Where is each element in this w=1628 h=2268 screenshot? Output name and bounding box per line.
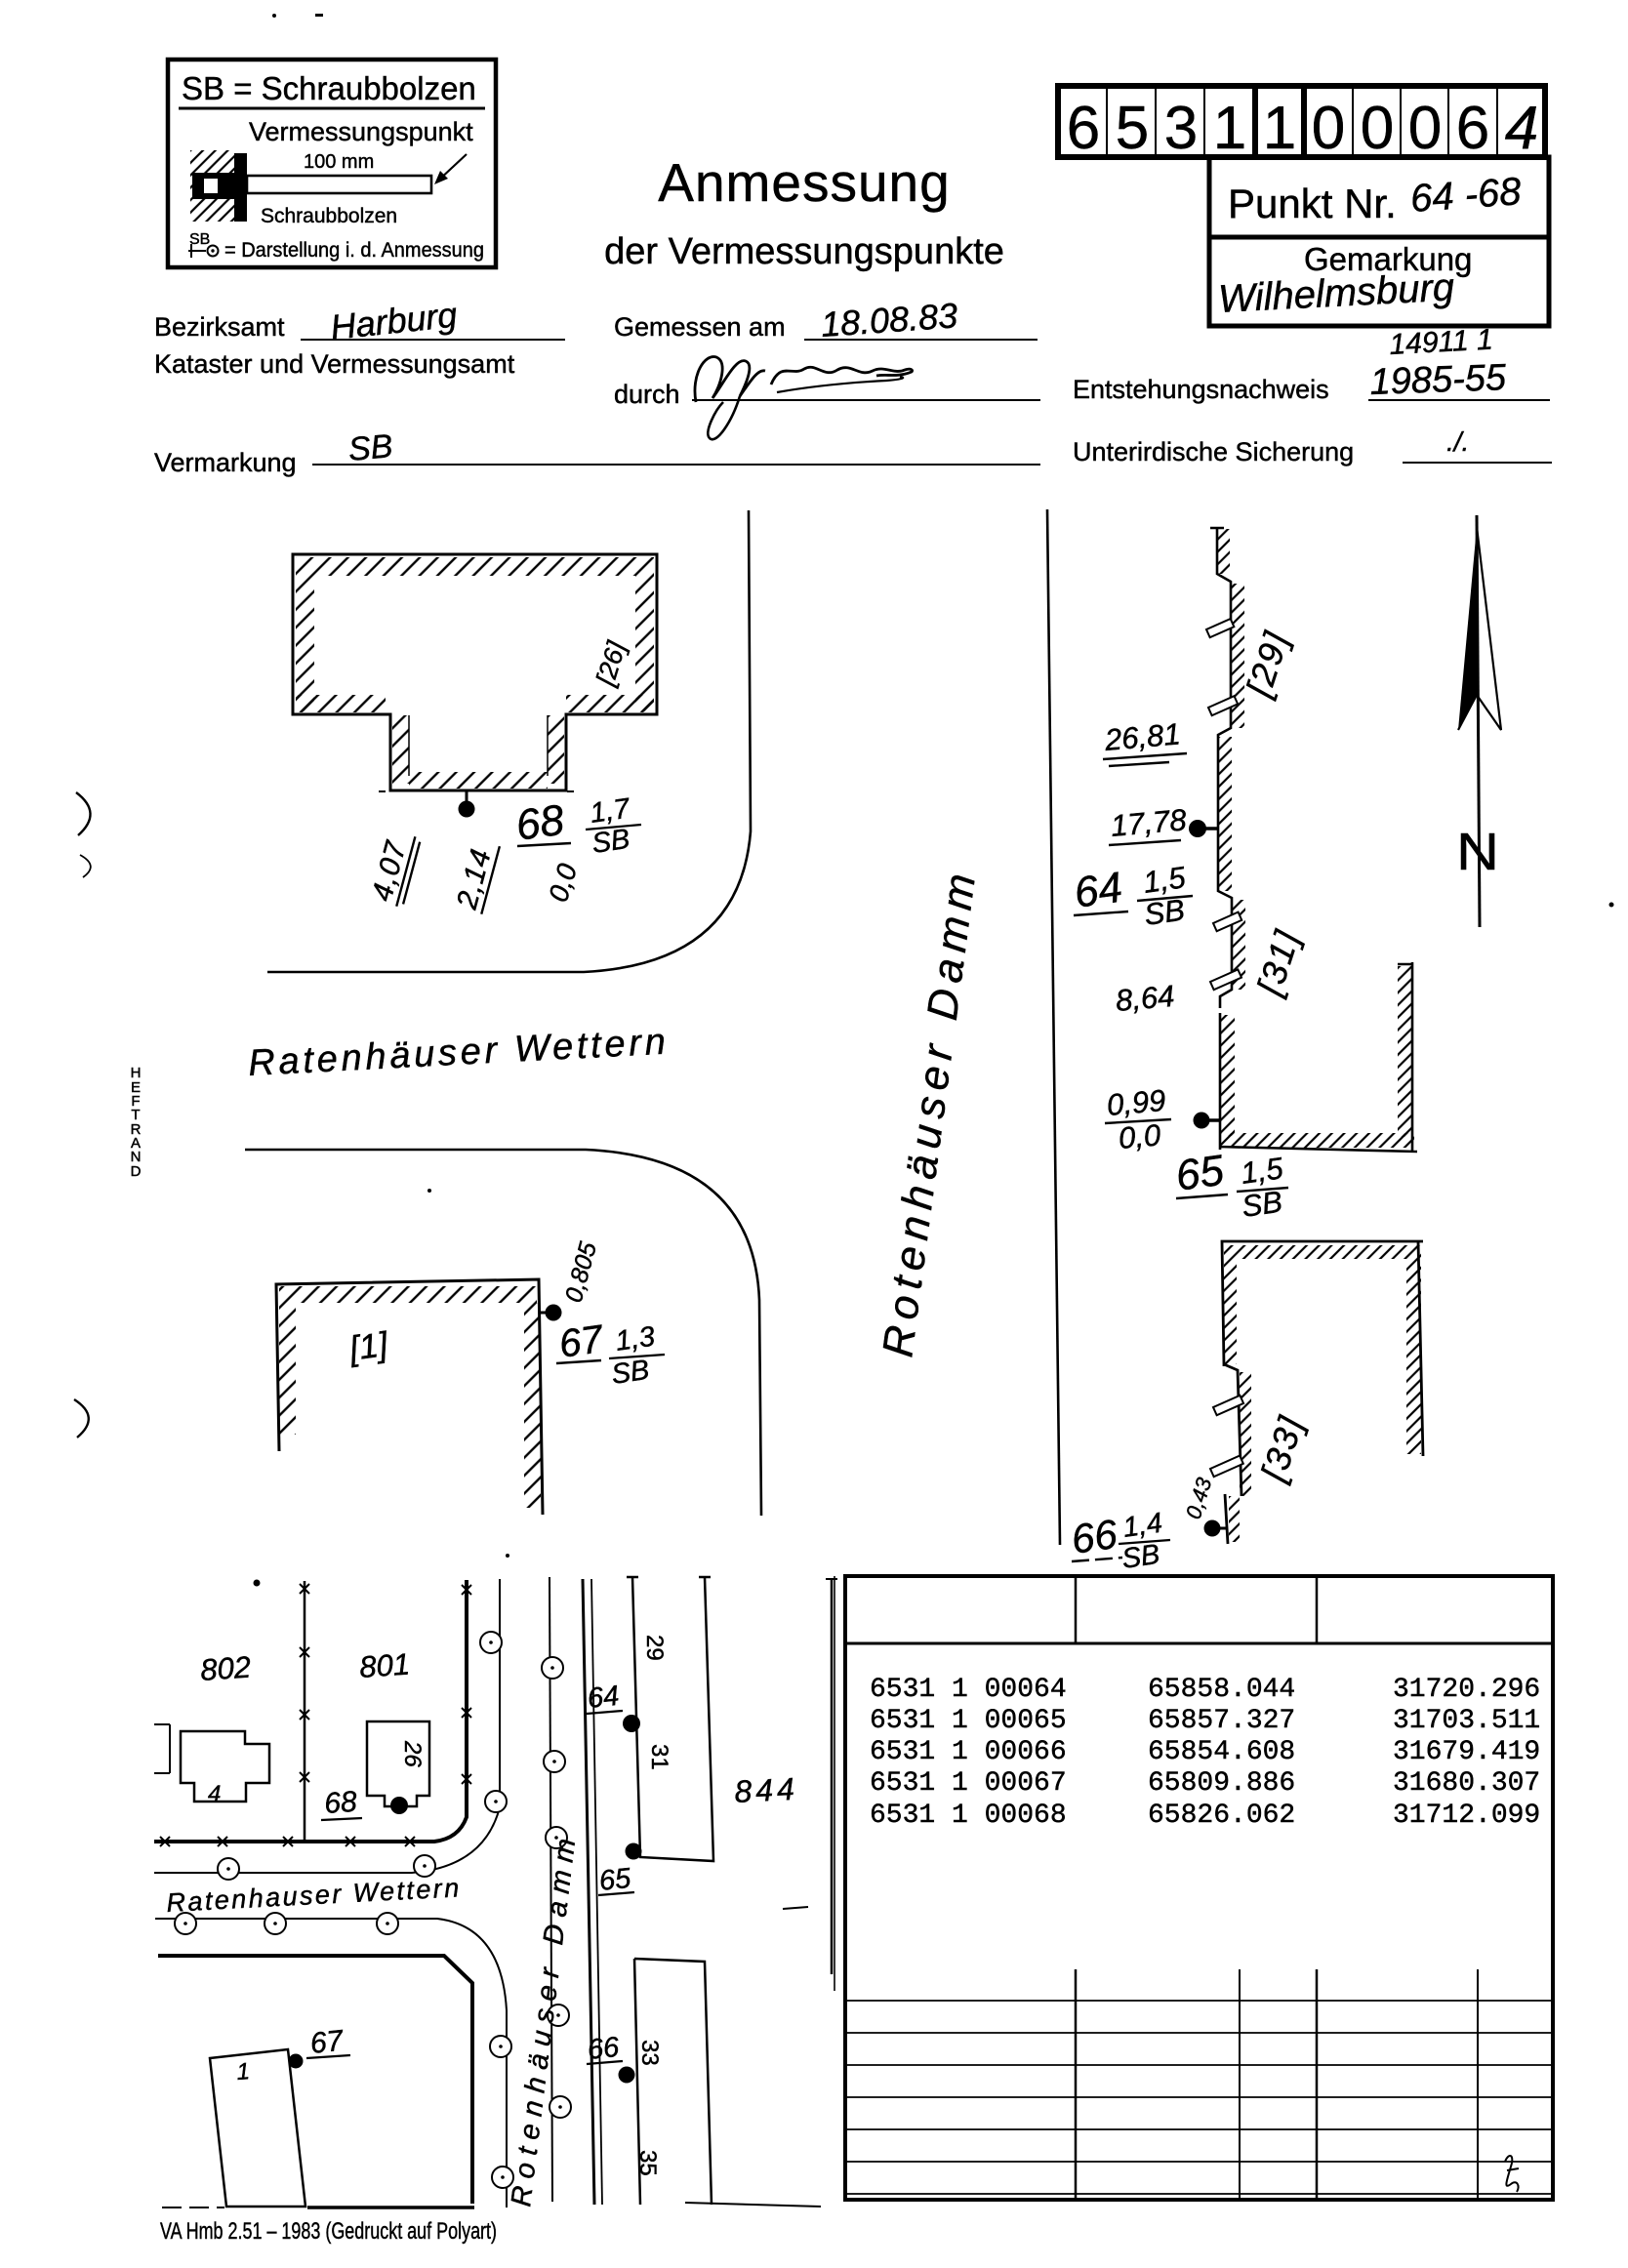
svg-text:26: 26 [399,1740,426,1767]
svg-text:31712.099: 31712.099 [1393,1801,1540,1831]
svg-text:1985-55: 1985-55 [1369,357,1508,403]
svg-text:Unterirdische Sicherung: Unterirdische Sicherung [1073,437,1354,466]
svg-text:67: 67 [556,1317,607,1366]
svg-text:0,805: 0,805 [560,1239,602,1306]
svg-text:6: 6 [1456,95,1489,162]
svg-text:SB: SB [610,1355,652,1391]
svg-text:5: 5 [1116,95,1149,162]
svg-text:1: 1 [1213,95,1246,162]
svg-text:1,4: 1,4 [1121,1508,1164,1544]
svg-text:31720.296: 31720.296 [1393,1675,1540,1705]
svg-text:Vermessungspunkt: Vermessungspunkt [249,117,473,146]
svg-text:100 mm: 100 mm [304,151,374,173]
svg-text:17,78: 17,78 [1110,802,1189,843]
svg-text:26,81: 26,81 [1103,716,1182,757]
svg-text:Vermarkung: Vermarkung [154,448,297,477]
svg-text:31680.307: 31680.307 [1393,1768,1540,1799]
svg-text:67: 67 [308,2025,346,2060]
svg-text:64 -68: 64 -68 [1409,170,1524,221]
svg-text:SB: SB [1120,1539,1162,1575]
svg-text:N: N [1456,823,1499,881]
svg-text:6531 1 00066: 6531 1 00066 [870,1737,1067,1767]
svg-text:1: 1 [236,2058,251,2086]
svg-text:D: D [131,1163,142,1180]
svg-text:Gemessen am: Gemessen am [614,312,786,342]
svg-text:4: 4 [1505,95,1538,162]
svg-text:Entstehungsnachweis: Entstehungsnachweis [1073,375,1329,404]
svg-text:66: 66 [1069,1511,1120,1562]
svg-text:0,43: 0,43 [1181,1474,1217,1521]
svg-text:0,99: 0,99 [1106,1083,1167,1122]
svg-text:31679.419: 31679.419 [1393,1737,1540,1767]
svg-text:14911 1: 14911 1 [1389,323,1494,361]
svg-text:Ratenhauser Wettern: Ratenhauser Wettern [166,1873,460,1918]
svg-text:Schraubbolzen: Schraubbolzen [261,205,397,227]
svg-text:29: 29 [641,1635,668,1661]
svg-text:[33]: [33] [1252,1410,1311,1486]
svg-text:Ratenhäuser Wettern: Ratenhäuser Wettern [247,1022,667,1084]
svg-text:65854.608: 65854.608 [1148,1737,1295,1767]
svg-text:[31]: [31] [1248,924,1307,1000]
svg-text:801: 801 [358,1646,411,1684]
svg-text:Rotenhäuser Damm: Rotenhäuser Damm [506,1829,583,2208]
svg-text:0: 0 [1361,95,1394,162]
svg-text:6531 1 00068: 6531 1 00068 [870,1801,1067,1831]
svg-text:64: 64 [1072,864,1125,917]
svg-text:68: 68 [323,1786,358,1820]
svg-text:802: 802 [199,1649,252,1687]
svg-text:64: 64 [586,1681,620,1715]
svg-text:8,64: 8,64 [1115,979,1176,1018]
svg-text:1,3: 1,3 [614,1321,657,1357]
svg-text:VA Hmb 2.51 – 1983 (Gedruckt a: VA Hmb 2.51 – 1983 (Gedruckt auf Polyart… [160,2218,497,2245]
svg-text:[29]: [29] [1238,626,1296,702]
svg-text:[1]: [1] [346,1325,391,1368]
svg-text:Rotenhäuser Damm: Rotenhäuser Damm [874,865,986,1360]
svg-text:der Vermessungspunkte: der Vermessungspunkte [604,231,1004,272]
svg-text:33: 33 [636,2040,663,2066]
svg-text:0,0: 0,0 [1118,1117,1162,1155]
svg-text:844: 844 [733,1771,798,1809]
svg-text:3: 3 [1164,95,1198,162]
svg-text:Punkt Nr.: Punkt Nr. [1228,181,1397,226]
svg-text:0: 0 [1312,95,1345,162]
svg-text:6531 1 00064: 6531 1 00064 [870,1675,1067,1705]
svg-text:0: 0 [1408,95,1442,162]
svg-text:6: 6 [1067,95,1100,162]
svg-text:SB: SB [346,427,393,468]
svg-text:6531 1 00067: 6531 1 00067 [870,1768,1067,1799]
svg-text:SB: SB [1142,893,1187,932]
svg-text:Wilhelmsburg: Wilhelmsburg [1217,265,1455,321]
svg-text:SB: SB [189,231,210,248]
svg-text:65858.044: 65858.044 [1148,1675,1295,1705]
svg-text:31: 31 [646,1744,672,1770]
svg-text:[26]: [26] [590,636,632,689]
svg-text:68: 68 [513,795,568,849]
svg-text:SB: SB [1240,1185,1284,1224]
svg-text:31703.511: 31703.511 [1393,1706,1540,1736]
svg-text:4: 4 [208,1781,221,1807]
svg-text:65826.062: 65826.062 [1148,1801,1295,1831]
svg-text:65857.327: 65857.327 [1148,1706,1295,1736]
svg-text:= Darstellung i. d. Anmessung: = Darstellung i. d. Anmessung [224,239,484,262]
svg-text:./.: ./. [1446,426,1469,457]
svg-text:18.08.83: 18.08.83 [820,295,959,344]
svg-text:Kataster und Vermessungsamt: Kataster und Vermessungsamt [154,349,515,379]
svg-text:6531 1 00065: 6531 1 00065 [870,1706,1067,1736]
svg-text:durch: durch [614,380,680,409]
svg-text:1: 1 [1263,95,1296,162]
svg-text:Anmessung: Anmessung [658,152,950,213]
svg-text:65809.886: 65809.886 [1148,1768,1295,1799]
svg-text:65: 65 [1173,1146,1228,1199]
svg-text:0,0: 0,0 [543,860,583,906]
svg-text:Bezirksamt: Bezirksamt [154,312,285,342]
svg-text:SB = Schraubbolzen: SB = Schraubbolzen [182,70,476,106]
svg-text:SB: SB [590,824,632,860]
svg-text:35: 35 [634,2150,661,2176]
